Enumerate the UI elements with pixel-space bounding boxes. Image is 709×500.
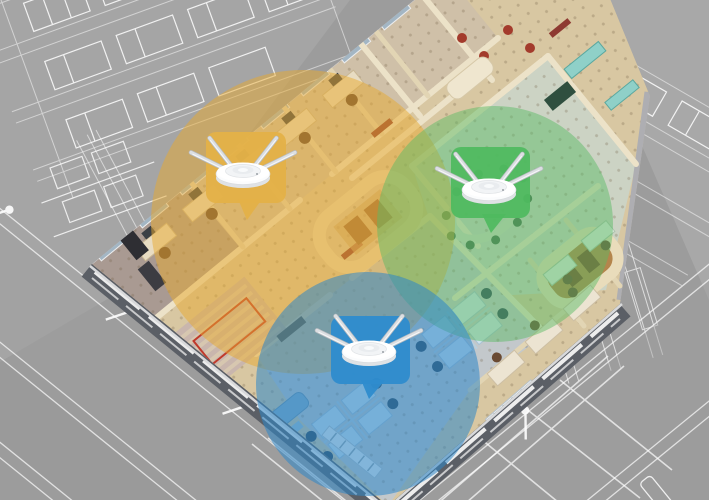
illustration-canvas xyxy=(0,0,709,500)
scene-svg xyxy=(0,0,709,500)
